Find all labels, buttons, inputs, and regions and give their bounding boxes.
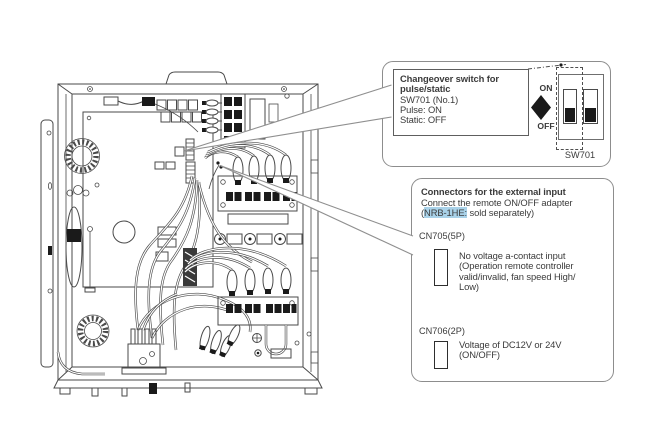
- top-terminal-strips: [104, 97, 202, 132]
- cn706-description: Voltage of DC12V or 24V (ON/OFF): [459, 340, 561, 361]
- wire-lug: [202, 127, 222, 133]
- manual-diagram-page: Changeover switch for pulse/static SW701…: [0, 0, 650, 438]
- mounting-plate: [83, 112, 213, 287]
- cabinet-frame: [54, 72, 322, 396]
- cn706-desc-line: (ON/OFF): [459, 350, 561, 360]
- cn706-connector-symbol: [434, 341, 448, 369]
- cn705-desc-line: Low): [459, 282, 575, 292]
- external-input-callout: Connectors for the external input Connec…: [411, 178, 614, 382]
- switch-no1-dashed-outline: [556, 67, 583, 150]
- cable-grommet-bottom: [77, 315, 109, 347]
- on-off-arrow-icon: [531, 94, 553, 121]
- cn706-label: CN706(2P): [419, 326, 465, 336]
- comb-connector: [122, 329, 166, 374]
- dip-switch-2: [583, 89, 598, 124]
- callout-text-line: Static: OFF: [400, 115, 528, 125]
- leader-to-changeover-callout: [184, 85, 392, 151]
- adapter-line: (NRB-1HE: sold separately): [421, 208, 534, 218]
- upper-terminal-assembly: [205, 143, 297, 224]
- cn705-connector-symbol: [434, 249, 448, 286]
- changeover-text-box: Changeover switch for pulse/static SW701…: [393, 69, 529, 136]
- upper-lug-column: [202, 94, 278, 148]
- sw701-label: SW701: [555, 150, 605, 160]
- wire-lug: [202, 100, 222, 106]
- adapter-model-highlight: NRB-1HE:: [424, 207, 467, 218]
- lower-terminal-assembly: [185, 248, 298, 354]
- adapter-suffix: sold separately): [467, 207, 534, 218]
- leader-to-connectors-callout: [220, 166, 413, 256]
- bottom-right-parts: [253, 332, 312, 358]
- dangling-wire-lugs: [198, 323, 242, 357]
- connectors-title: Connectors for the external input: [421, 187, 566, 197]
- left-flap-panel: [41, 120, 53, 367]
- wire-lug: [202, 109, 222, 115]
- pcb-connectors-cn705-cn706: [155, 139, 223, 189]
- changeover-switch-callout: Changeover switch for pulse/static SW701…: [382, 61, 611, 167]
- cable-grommet-top: [65, 139, 100, 174]
- dip-switch-2-handle: [585, 108, 596, 122]
- wire-harness: [136, 176, 252, 350]
- breaker-row: [215, 234, 303, 245]
- wire-lug: [202, 118, 222, 124]
- cn705-description: No voltage a-contact input (Operation re…: [459, 251, 575, 293]
- cn705-label: CN705(5P): [419, 231, 465, 241]
- capacitor-assembly: [58, 183, 105, 374]
